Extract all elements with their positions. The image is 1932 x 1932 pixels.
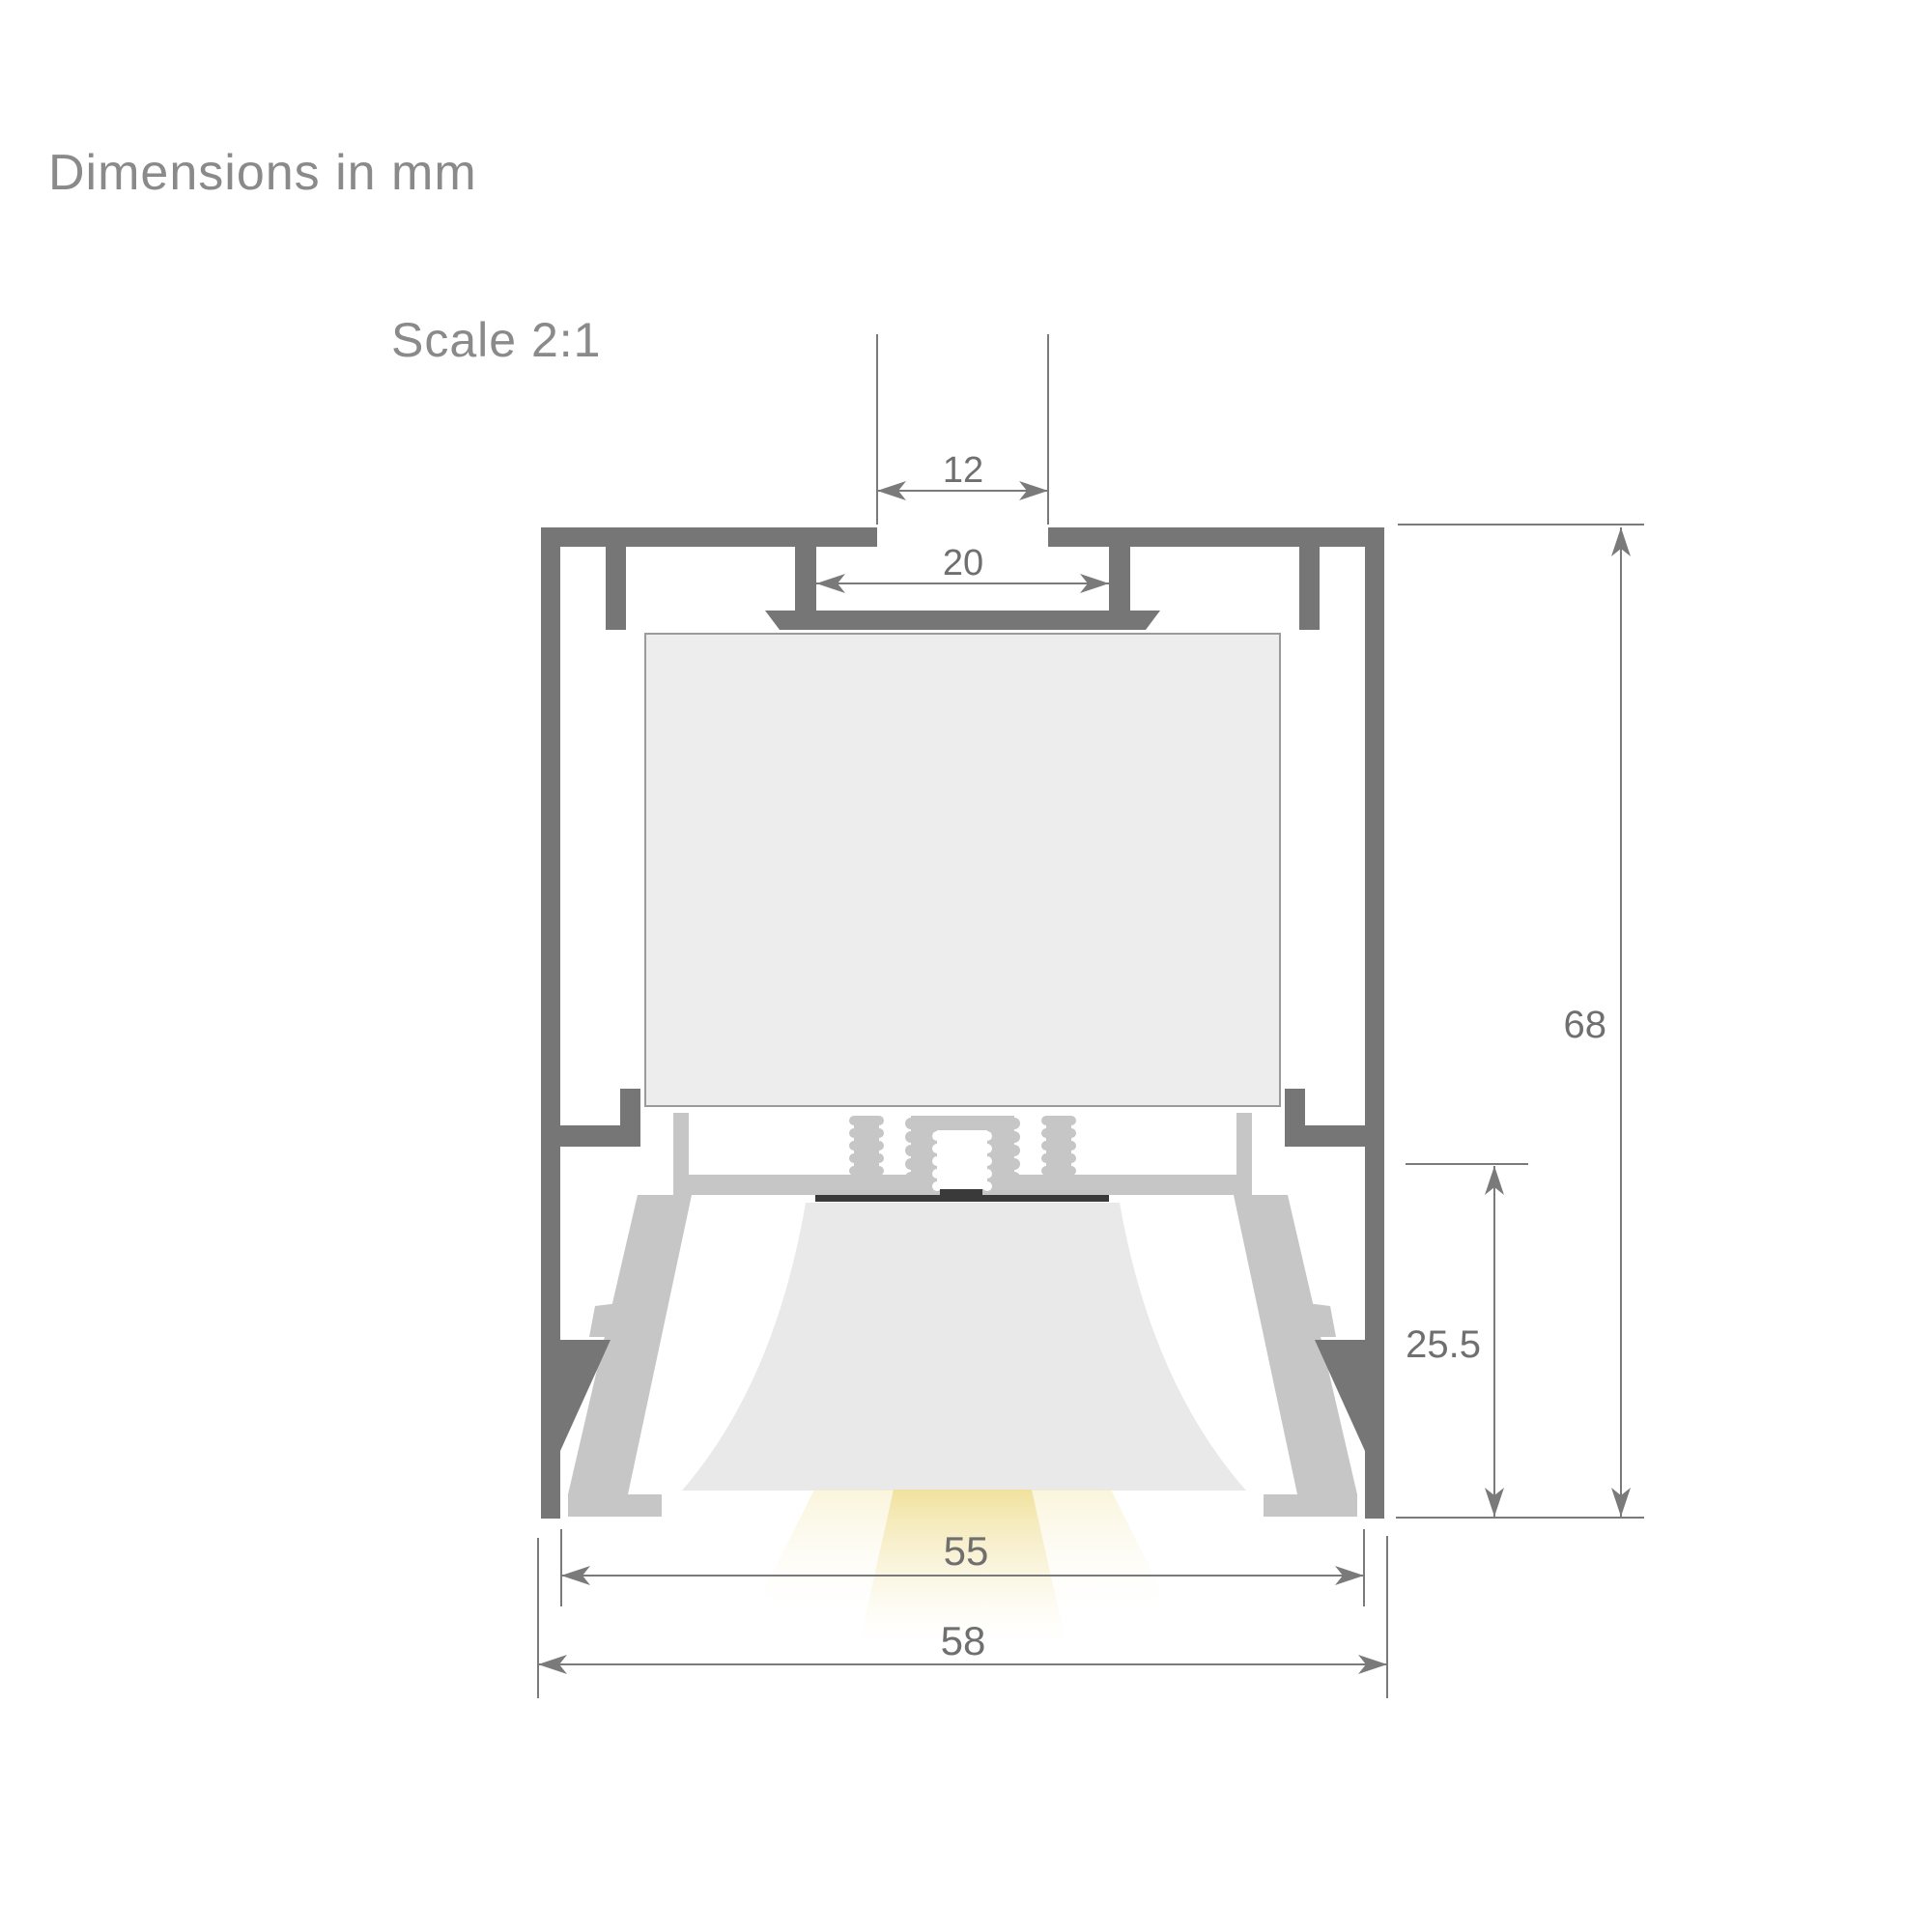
led-strip-bar <box>815 1195 1109 1202</box>
slot-wall-left <box>795 547 816 611</box>
dim-label-overall-width: 58 <box>941 1618 986 1663</box>
profile-drawing: Dimensions in mm Scale 2:1 <box>0 0 1932 1932</box>
inner-step-right <box>1285 1089 1365 1147</box>
inner-step-left <box>560 1089 640 1147</box>
dim-label-overall-height: 68 <box>1564 1004 1607 1046</box>
reflector-tab-right <box>1292 1301 1336 1337</box>
page-title: Dimensions in mm <box>48 145 477 201</box>
reflector-tab-left <box>589 1301 634 1337</box>
top-bar-left <box>541 527 877 547</box>
top-bar-right <box>1048 527 1384 547</box>
outer-wall-right <box>1365 527 1384 1519</box>
hanging-fin-right <box>1299 547 1320 630</box>
dim-label-slot-opening: 12 <box>943 450 983 491</box>
slot-base-plate <box>765 611 1160 630</box>
bottom-foot-right <box>1264 1494 1357 1517</box>
scale-label: Scale 2:1 <box>391 313 601 367</box>
dim-label-lower-height: 25.5 <box>1406 1323 1481 1366</box>
slot-wall-right <box>1109 547 1130 611</box>
dim-label-inner-width: 55 <box>944 1528 989 1574</box>
diffuser-beam <box>682 1203 1246 1491</box>
outer-wall-left <box>541 527 560 1519</box>
support-post-right <box>1236 1113 1252 1177</box>
bottom-foot-left <box>568 1494 662 1517</box>
hanging-fin-left <box>606 547 626 630</box>
screw-hole <box>932 1130 992 1191</box>
support-post-left <box>673 1113 689 1177</box>
driver-cavity <box>645 634 1280 1106</box>
dim-label-slot-width: 20 <box>943 543 983 583</box>
